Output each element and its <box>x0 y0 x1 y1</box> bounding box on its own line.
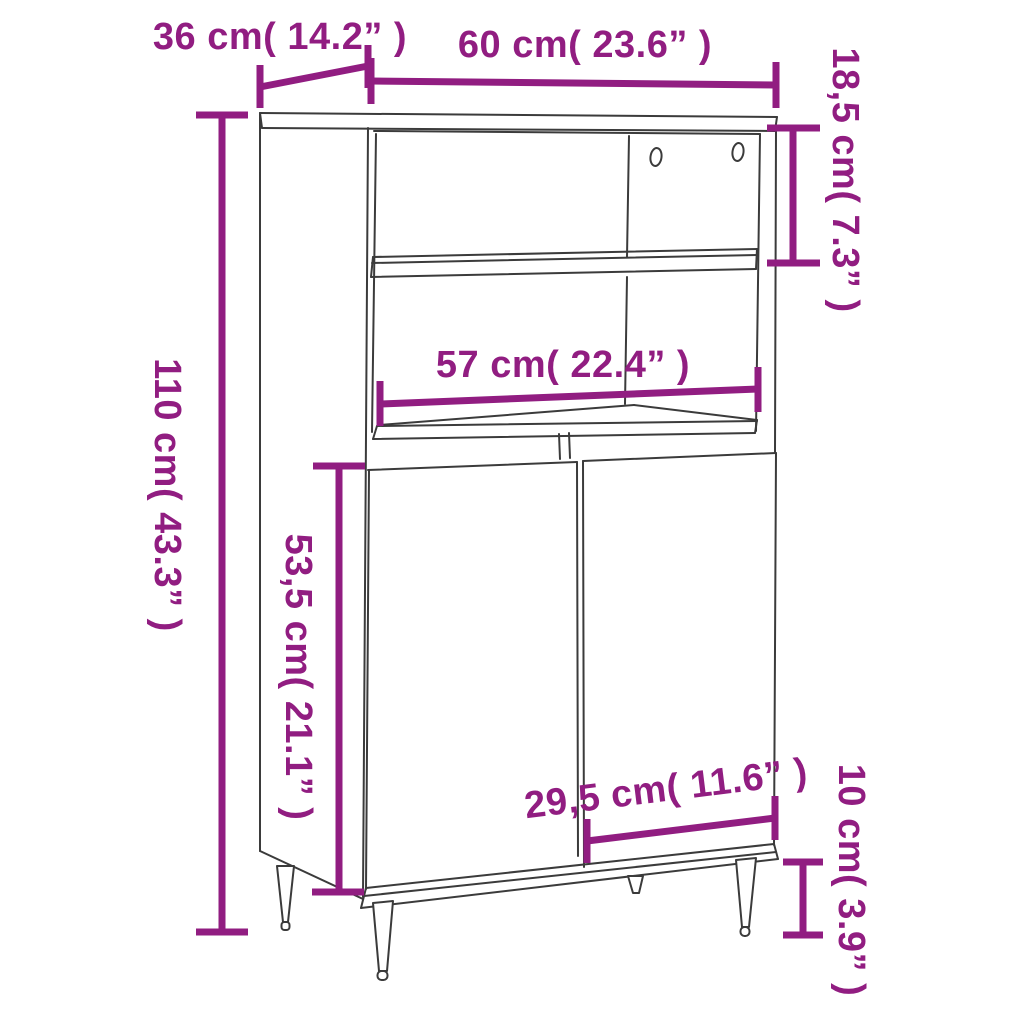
cabinet-top-slab <box>260 113 777 134</box>
dimension-leg-height-line <box>783 862 823 935</box>
dimension-inner-width-label: 57 cm( 22.4” ) <box>403 342 723 388</box>
furniture-dimension-diagram: 36 cm( 14.2” ) 60 cm( 23.6” ) 18,5 cm( 7… <box>0 0 1024 1024</box>
leg-front-left <box>373 901 393 971</box>
mounting-hole <box>731 142 744 161</box>
dimension-leg-height-label: 10 cm( 3.9” ) <box>828 750 874 1010</box>
leg-back-left <box>277 866 294 922</box>
dimension-width-label: 60 cm( 23.6” ) <box>425 22 745 68</box>
dimension-total-height-label: 110 cm( 43.3” ) <box>144 345 190 645</box>
leg-foot <box>378 971 388 980</box>
mounting-hole <box>649 147 662 166</box>
dimension-top-section-height-label: 18,5 cm( 7.3” ) <box>822 30 868 330</box>
leg-front-right <box>736 858 756 927</box>
dimension-depth-label: 36 cm( 14.2” ) <box>115 14 445 60</box>
leg-foot <box>741 927 750 936</box>
cabinet-shelf-worktop <box>373 405 757 459</box>
cabinet-base <box>361 844 778 908</box>
cabinet-shelf-upper <box>371 249 757 277</box>
leg-foot <box>282 922 290 930</box>
left-door-left-edge <box>366 470 369 889</box>
left-door-top <box>368 462 577 470</box>
dimension-door-height-label: 53,5 cm( 21.1” ) <box>275 512 321 842</box>
leg-middle <box>628 876 643 893</box>
right-door-top <box>583 453 776 461</box>
cabinet-legs <box>277 858 756 980</box>
dimension-total-height-line <box>196 115 248 932</box>
